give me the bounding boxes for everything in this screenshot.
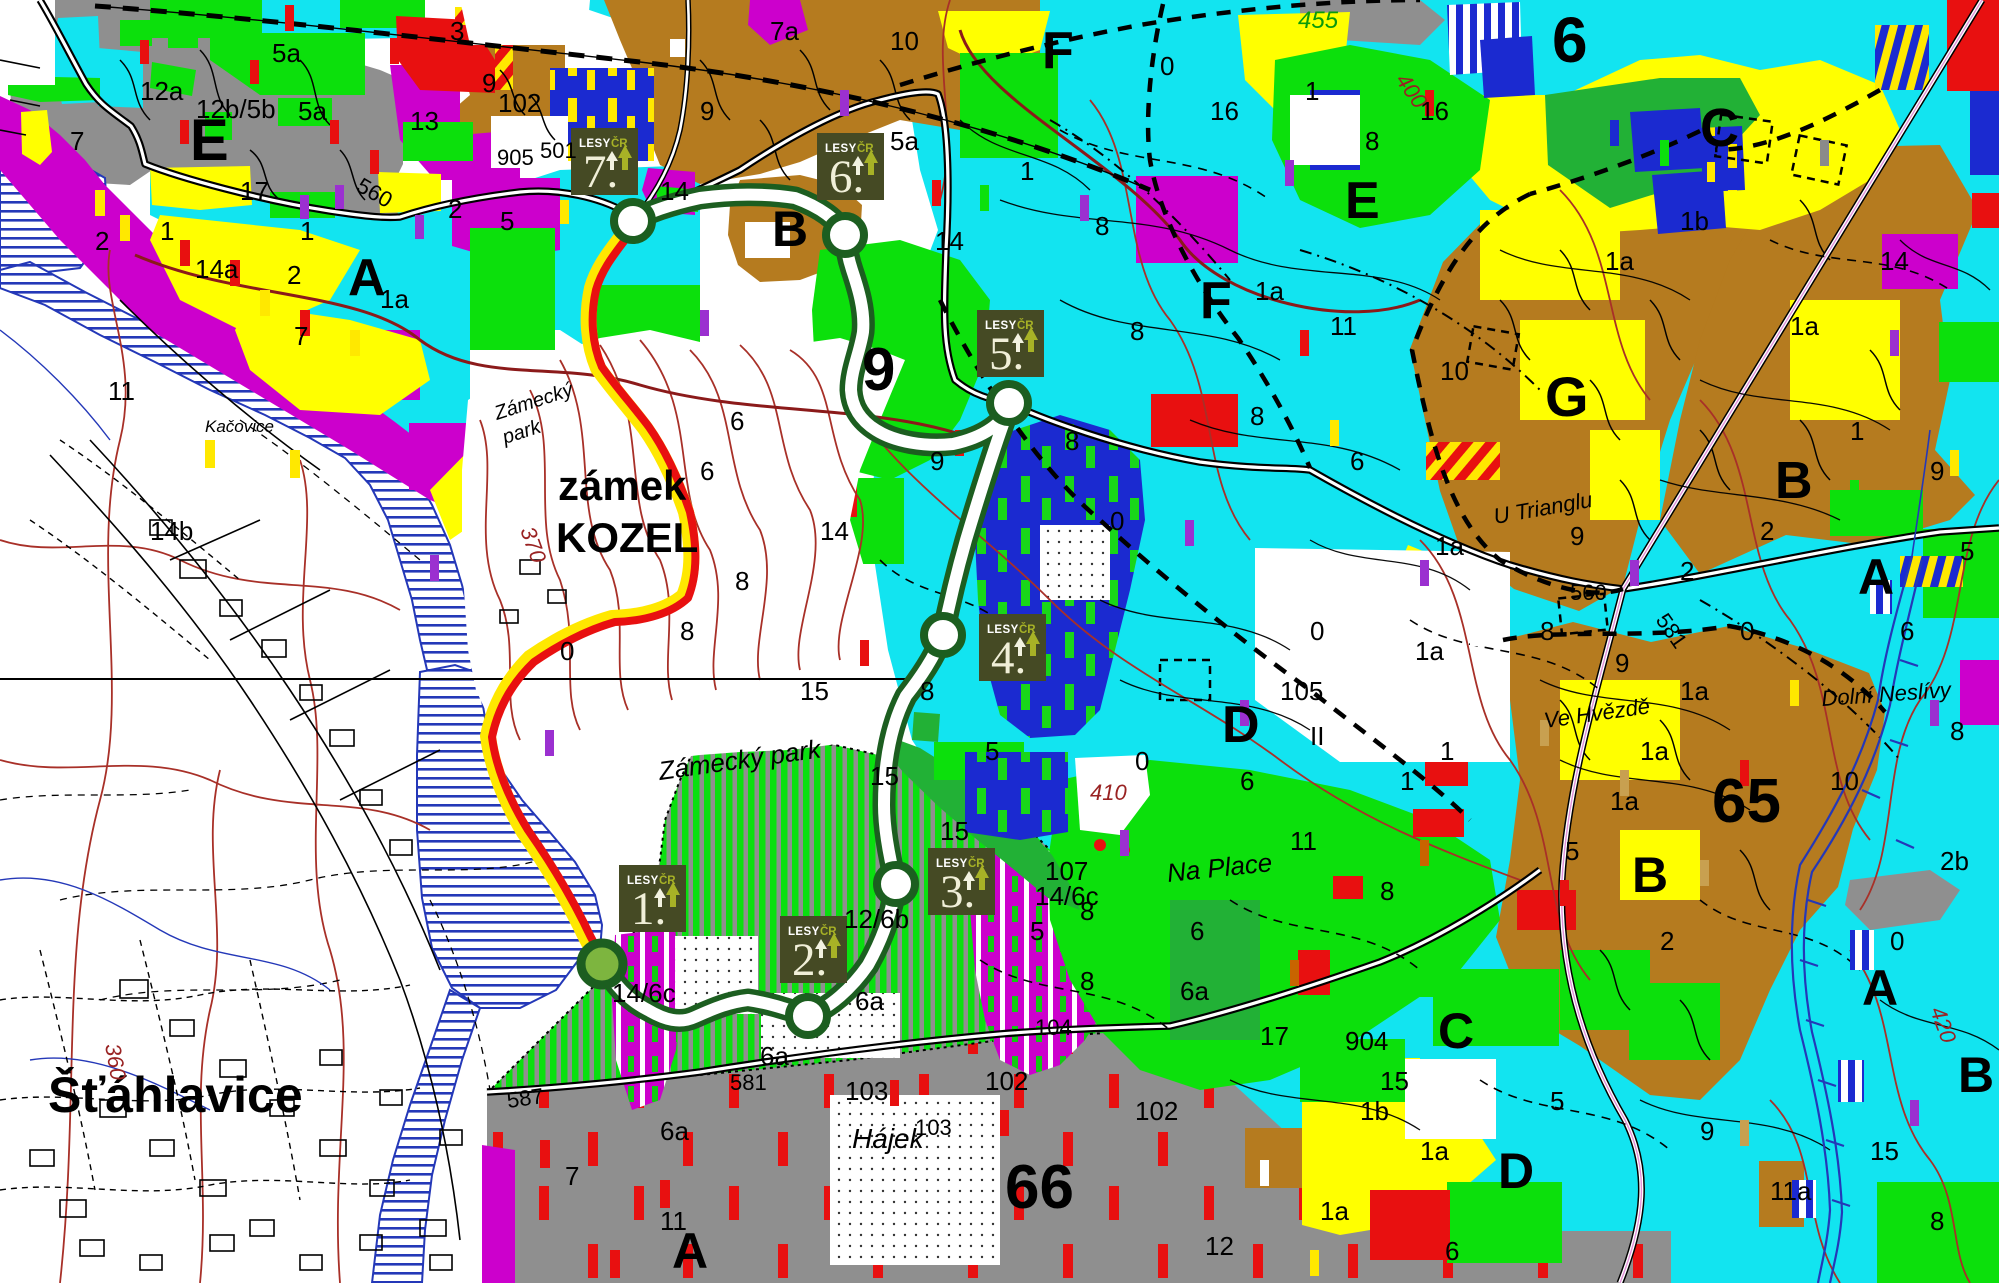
- svg-text:6: 6: [700, 456, 714, 486]
- svg-text:B: B: [1958, 1047, 1994, 1103]
- svg-text:5: 5: [1565, 836, 1579, 866]
- svg-text:Šťáhlavice: Šťáhlavice: [48, 1066, 303, 1123]
- svg-text:6a: 6a: [660, 1116, 689, 1146]
- svg-text:14: 14: [660, 176, 689, 206]
- svg-text:2: 2: [95, 226, 109, 256]
- svg-text:1: 1: [1020, 156, 1034, 186]
- svg-text:1: 1: [1850, 416, 1864, 446]
- svg-text:904: 904: [1345, 1026, 1388, 1056]
- svg-text:11a: 11a: [1770, 1176, 1812, 1206]
- svg-text:10: 10: [1830, 766, 1859, 796]
- svg-text:14b: 14b: [150, 516, 193, 546]
- svg-text:B: B: [772, 201, 808, 257]
- svg-text:1a: 1a: [1610, 786, 1639, 816]
- svg-text:A: A: [1858, 549, 1894, 605]
- svg-text:9: 9: [1570, 521, 1584, 551]
- svg-text:12a: 12a: [140, 76, 184, 106]
- svg-text:6: 6: [1445, 1236, 1459, 1266]
- svg-text:1a: 1a: [1640, 736, 1669, 766]
- svg-text:5: 5: [1960, 536, 1974, 566]
- svg-text:1: 1: [300, 216, 314, 246]
- svg-text:1a: 1a: [380, 284, 409, 314]
- svg-text:8: 8: [1950, 716, 1964, 746]
- svg-text:3: 3: [450, 16, 464, 46]
- svg-text:103: 103: [845, 1076, 888, 1106]
- svg-text:17: 17: [240, 176, 269, 206]
- svg-text:9: 9: [700, 96, 714, 126]
- svg-text:8: 8: [1080, 966, 1094, 996]
- svg-text:7: 7: [565, 1161, 579, 1191]
- svg-text:2: 2: [1660, 926, 1674, 956]
- svg-text:0: 0: [1310, 616, 1324, 646]
- svg-text:6: 6: [1552, 4, 1588, 76]
- svg-text:D: D: [1222, 696, 1260, 754]
- svg-text:0: 0: [1740, 616, 1754, 646]
- svg-text:8: 8: [1365, 126, 1379, 156]
- svg-text:8: 8: [1065, 426, 1079, 456]
- svg-text:6.: 6.: [829, 151, 864, 203]
- svg-text:5: 5: [985, 736, 999, 766]
- svg-text:2: 2: [448, 194, 462, 224]
- svg-text:1: 1: [1305, 76, 1319, 106]
- svg-text:13: 13: [410, 106, 439, 136]
- svg-text:14: 14: [1880, 246, 1909, 276]
- svg-text:8: 8: [735, 566, 749, 596]
- svg-text:1: 1: [1440, 736, 1454, 766]
- svg-text:11: 11: [1330, 311, 1357, 341]
- svg-text:1a: 1a: [1680, 676, 1709, 706]
- svg-text:14/6c: 14/6c: [1035, 881, 1099, 911]
- svg-text:17: 17: [1260, 1021, 1289, 1051]
- svg-text:103: 103: [915, 1115, 952, 1140]
- svg-text:1a: 1a: [1255, 276, 1284, 306]
- svg-text:5: 5: [1030, 916, 1044, 946]
- svg-text:7: 7: [70, 126, 84, 156]
- svg-text:8: 8: [1930, 1206, 1944, 1236]
- svg-text:KOZEL: KOZEL: [556, 514, 698, 561]
- svg-text:5a: 5a: [298, 96, 327, 126]
- svg-text:1a: 1a: [1320, 1196, 1349, 1226]
- svg-text:11: 11: [1290, 826, 1317, 856]
- svg-text:15: 15: [1380, 1066, 1409, 1096]
- svg-text:0: 0: [1135, 746, 1149, 776]
- svg-text:A: A: [1862, 960, 1898, 1016]
- svg-text:9: 9: [1615, 648, 1629, 678]
- svg-text:501: 501: [540, 138, 577, 163]
- svg-text:4.: 4.: [991, 632, 1026, 684]
- svg-text:14/6c: 14/6c: [612, 978, 676, 1008]
- svg-text:9: 9: [1930, 456, 1944, 486]
- svg-text:905: 905: [497, 145, 534, 170]
- svg-text:8: 8: [920, 676, 934, 706]
- svg-text:0: 0: [1890, 926, 1904, 956]
- svg-text:9: 9: [930, 446, 944, 476]
- svg-text:102: 102: [498, 88, 541, 118]
- svg-text:14: 14: [820, 516, 849, 546]
- svg-text:8: 8: [1130, 316, 1144, 346]
- svg-text:1a: 1a: [1415, 636, 1444, 666]
- svg-text:0: 0: [1110, 506, 1124, 536]
- svg-text:1b: 1b: [1680, 206, 1709, 236]
- svg-text:F: F: [1042, 22, 1074, 80]
- svg-text:12/6b: 12/6b: [844, 904, 909, 934]
- svg-text:8: 8: [680, 616, 694, 646]
- svg-text:102: 102: [1135, 1096, 1178, 1126]
- svg-text:15: 15: [1870, 1136, 1899, 1166]
- svg-text:581: 581: [730, 1070, 767, 1095]
- svg-text:6: 6: [1190, 916, 1204, 946]
- svg-text:102: 102: [985, 1066, 1028, 1096]
- svg-text:410: 410: [1090, 780, 1127, 805]
- svg-text:2: 2: [287, 260, 301, 290]
- svg-text:65: 65: [1712, 767, 1781, 836]
- svg-text:11: 11: [108, 376, 135, 406]
- svg-text:E: E: [1345, 172, 1380, 230]
- svg-text:5.: 5.: [989, 328, 1024, 380]
- svg-text:9: 9: [482, 68, 496, 98]
- svg-text:3.: 3.: [940, 866, 975, 918]
- svg-text:1: 1: [160, 216, 174, 246]
- svg-text:C: C: [1700, 98, 1739, 158]
- svg-text:7a: 7a: [770, 16, 799, 46]
- svg-text:6a: 6a: [1180, 976, 1209, 1006]
- svg-text:G: G: [1545, 365, 1589, 428]
- svg-text:105: 105: [1280, 676, 1323, 706]
- svg-text:2: 2: [1760, 516, 1774, 546]
- svg-text:2: 2: [1680, 556, 1694, 586]
- svg-text:6: 6: [1350, 446, 1364, 476]
- svg-text:5: 5: [500, 206, 514, 236]
- svg-text:1a: 1a: [1790, 311, 1819, 341]
- svg-text:6: 6: [1900, 616, 1914, 646]
- svg-text:0: 0: [1160, 51, 1174, 81]
- svg-text:C: C: [1438, 1003, 1474, 1059]
- svg-text:8: 8: [1250, 401, 1264, 431]
- svg-text:1.: 1.: [631, 883, 666, 935]
- svg-text:455: 455: [1298, 7, 1339, 34]
- svg-text:6: 6: [1240, 766, 1254, 796]
- svg-text:B: B: [1775, 452, 1813, 510]
- svg-text:12: 12: [1205, 1231, 1234, 1261]
- svg-text:10: 10: [1440, 356, 1469, 386]
- svg-text:0: 0: [560, 636, 574, 666]
- svg-text:14: 14: [935, 226, 964, 256]
- svg-text:zámek: zámek: [558, 462, 687, 509]
- svg-text:5a: 5a: [272, 38, 301, 68]
- svg-text:14a: 14a: [195, 254, 239, 284]
- svg-text:6a: 6a: [855, 986, 884, 1016]
- svg-text:16: 16: [1210, 96, 1239, 126]
- svg-text:9: 9: [1700, 1116, 1714, 1146]
- svg-text:Kačovice: Kačovice: [205, 417, 274, 436]
- svg-text:1a: 1a: [1420, 1136, 1449, 1166]
- svg-text:15: 15: [870, 761, 899, 791]
- svg-text:15: 15: [940, 816, 969, 846]
- svg-text:7: 7: [294, 321, 308, 351]
- svg-text:6a: 6a: [760, 1041, 789, 1071]
- svg-text:104: 104: [1035, 1015, 1072, 1040]
- svg-text:2b: 2b: [1940, 846, 1969, 876]
- svg-text:15: 15: [800, 676, 829, 706]
- svg-text:1a: 1a: [1605, 246, 1634, 276]
- svg-text:12b/5b: 12b/5b: [196, 94, 276, 124]
- svg-text:11: 11: [660, 1206, 687, 1236]
- svg-text:II: II: [1310, 721, 1324, 751]
- svg-text:F: F: [1200, 272, 1232, 330]
- svg-text:7.: 7.: [583, 146, 618, 198]
- svg-text:560: 560: [1570, 580, 1607, 605]
- svg-text:1a: 1a: [1435, 531, 1464, 561]
- svg-text:1: 1: [1400, 766, 1414, 796]
- svg-text:9: 9: [862, 336, 895, 403]
- svg-text:587: 587: [505, 1083, 545, 1113]
- svg-text:D: D: [1498, 1143, 1534, 1199]
- svg-text:8: 8: [1095, 211, 1109, 241]
- svg-text:10: 10: [890, 26, 919, 56]
- svg-text:B: B: [1632, 847, 1668, 903]
- svg-text:8: 8: [1540, 616, 1554, 646]
- svg-text:2.: 2.: [792, 934, 827, 986]
- svg-text:5a: 5a: [890, 126, 919, 156]
- svg-text:66: 66: [1005, 1153, 1074, 1222]
- svg-text:6: 6: [730, 406, 744, 436]
- svg-text:1b: 1b: [1360, 1096, 1389, 1126]
- svg-text:8: 8: [1380, 876, 1394, 906]
- svg-text:5: 5: [1550, 1086, 1564, 1116]
